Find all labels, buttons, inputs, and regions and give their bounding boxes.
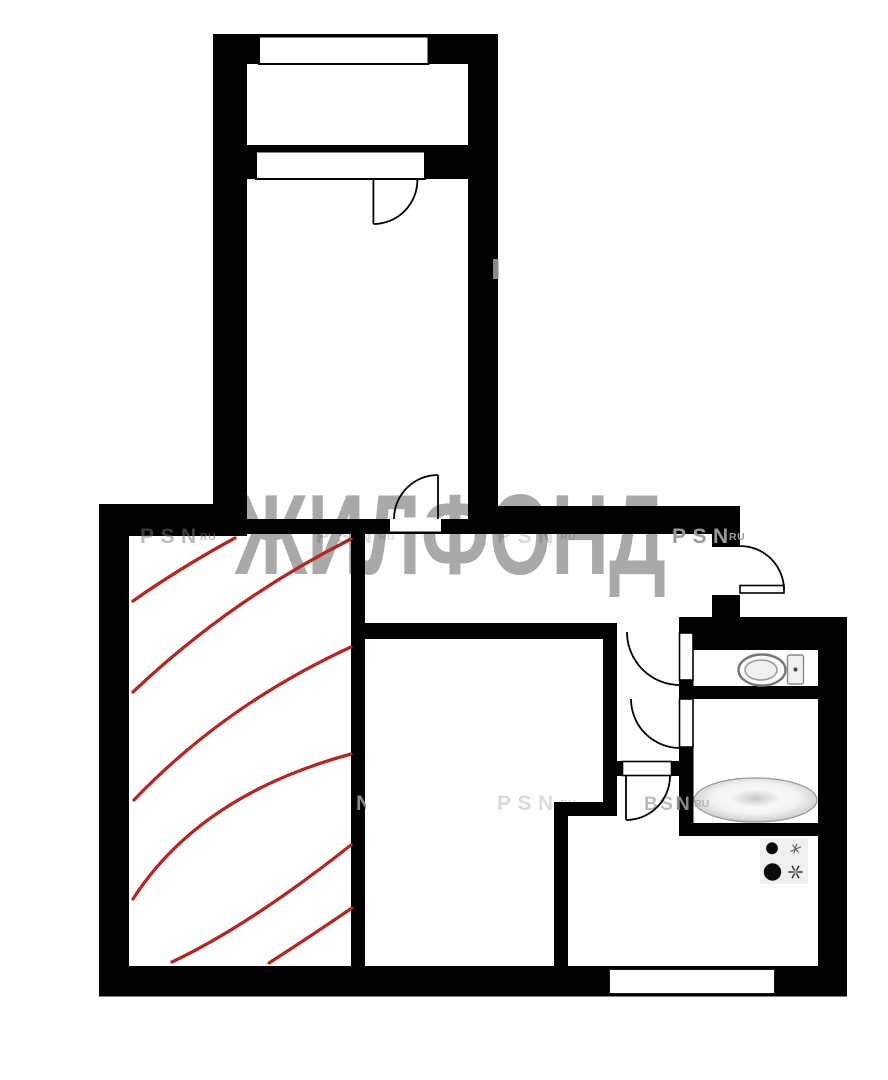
svg-text:PSN: PSN: [672, 525, 735, 548]
svg-text:RU: RU: [200, 531, 216, 543]
svg-text:RU: RU: [379, 531, 395, 543]
svg-text:ЖИЛФОНД: ЖИЛФОНД: [234, 472, 666, 599]
svg-text:RU: RU: [694, 798, 709, 810]
svg-text:PSN: PSN: [497, 525, 560, 548]
svg-text:RU: RU: [560, 798, 576, 810]
svg-text:RU: RU: [560, 531, 576, 543]
svg-text:PSN: PSN: [316, 525, 379, 548]
svg-text:N: N: [676, 794, 690, 815]
svg-text:PSN: PSN: [140, 525, 203, 548]
svg-text:PSN: PSN: [497, 792, 560, 815]
svg-text:RU: RU: [729, 531, 745, 543]
